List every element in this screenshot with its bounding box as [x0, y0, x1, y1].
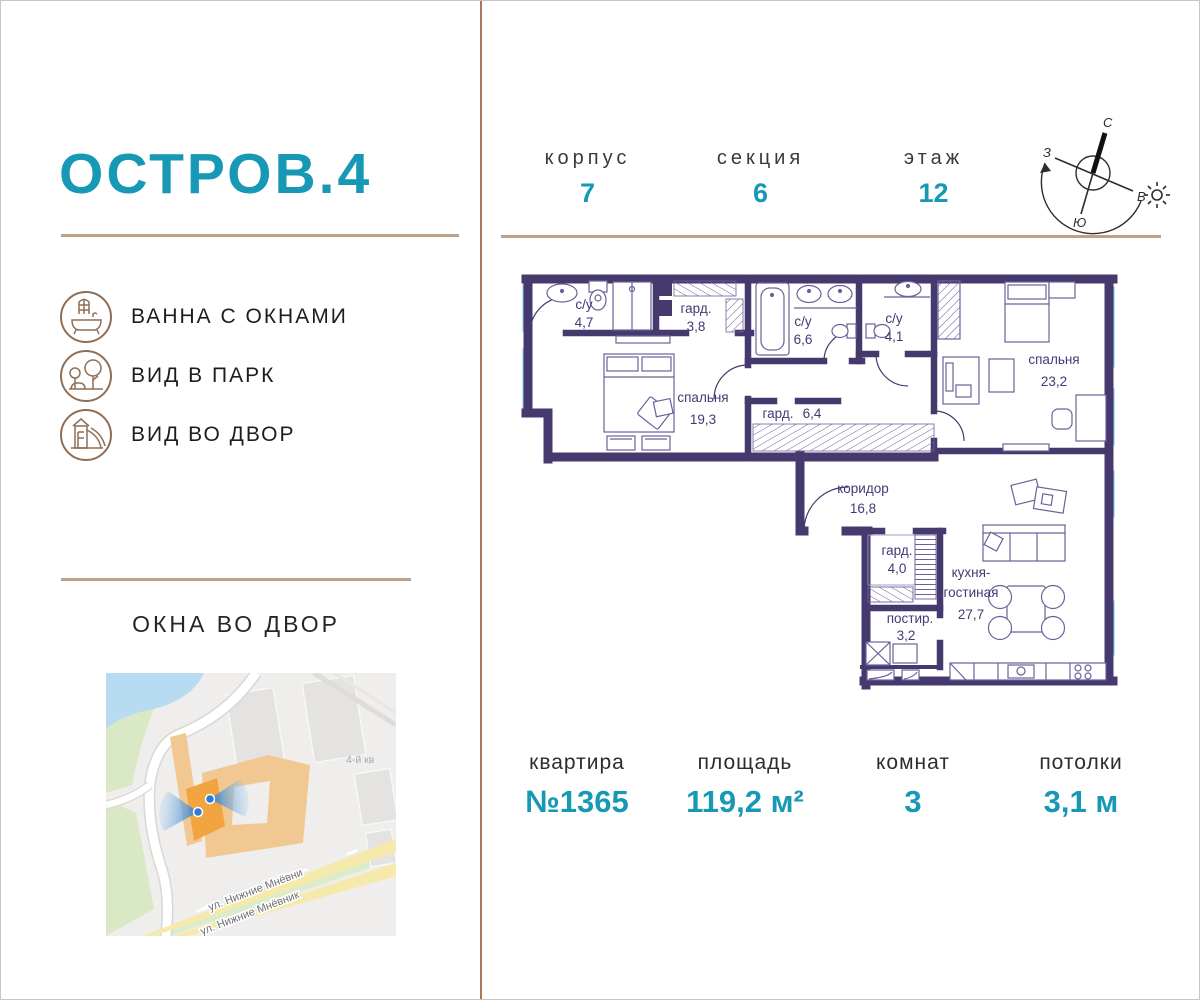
stat-korpus-value: 7: [501, 178, 674, 209]
feature-park-view: ВИД В ПАРК: [59, 350, 348, 402]
feature-bath-windows-label: ВАННА С ОКНАМИ: [131, 305, 348, 329]
feature-park-view-label: ВИД В ПАРК: [131, 364, 275, 388]
stat-sekcia: секция 6: [674, 147, 847, 209]
stat-flat-number: квартира №1365: [493, 751, 661, 820]
stat-rooms-label: комнат: [829, 751, 997, 775]
compass-south-label: Ю: [1073, 215, 1086, 230]
logo: ОСТРОВ.4: [59, 141, 461, 207]
stat-korpus: корпус 7: [501, 147, 674, 209]
stat-flat-number-label: квартира: [493, 751, 661, 775]
bathroom-47-fixtures: [547, 281, 651, 330]
floor-plan[interactable]: с/у 4,7 гард. 3,8 с/у 6,6 с/у 4,1 спальн…: [516, 267, 1126, 701]
room-label-gard40: гард.: [882, 543, 913, 558]
feature-bath-windows: ВАННА С ОКНАМИ: [59, 291, 348, 343]
stat-area: площадь 119,2 м²: [661, 751, 829, 820]
summary-stats: квартира №1365 площадь 119,2 м² комнат 3…: [493, 751, 1165, 820]
map-view-dot[interactable]: [194, 808, 203, 817]
stat-ceiling: потолки 3,1 м: [997, 751, 1165, 820]
flat-card-page: ОСТРОВ.4 корпус 7 секция 6 этаж 12 С Ю З: [0, 0, 1200, 1000]
district-label: 4-й кв: [346, 754, 375, 766]
room-label-su47: с/у: [575, 297, 593, 312]
bathroom-66-fixtures: [756, 283, 890, 355]
wardrobe-64-fixtures: [753, 424, 934, 451]
mini-map[interactable]: ул. Нижние Мнёвни ул. Нижние Мнёвник 4-й…: [106, 673, 396, 936]
map-underline: [61, 578, 411, 581]
room-area-su47: 4,7: [575, 315, 594, 330]
stat-flat-number-value: №1365: [493, 784, 661, 820]
stat-sekcia-value: 6: [674, 178, 847, 209]
bedroom-232-furniture: [938, 281, 1106, 451]
room-area-kitchen: 27,7: [958, 607, 984, 622]
room-area-postir: 3,2: [897, 628, 916, 643]
vertical-divider: [480, 1, 482, 1000]
stat-ceiling-value: 3,1 м: [997, 784, 1165, 820]
room-label-su66: с/у: [794, 314, 812, 329]
compass-west-label: З: [1043, 145, 1051, 160]
room-area-gard40: 4,0: [888, 561, 907, 576]
room-label-kitchen-2: гостиная: [944, 585, 999, 600]
feature-list: ВАННА С ОКНАМИ ВИД В ПАРК: [59, 291, 348, 468]
bath-with-window-icon: [59, 290, 113, 344]
feature-courtyard-view-label: ВИД ВО ДВОР: [131, 423, 296, 447]
room-label-gard38: гард.: [681, 301, 712, 316]
building-stats: корпус 7 секция 6 этаж 12: [501, 147, 1021, 209]
map-view-dot[interactable]: [206, 795, 215, 804]
room-area-bedroom232: 23,2: [1041, 374, 1067, 389]
room-area-bedroom193: 19,3: [690, 412, 716, 427]
feature-courtyard-view: ВИД ВО ДВОР: [59, 409, 348, 461]
room-area-gard38: 3,8: [687, 319, 706, 334]
stat-ceiling-label: потолки: [997, 751, 1165, 775]
stat-etazh-value: 12: [847, 178, 1020, 209]
stat-rooms: комнат 3: [829, 751, 997, 820]
stat-area-value: 119,2 м²: [661, 784, 829, 820]
room-label-koridor: коридор: [837, 481, 889, 496]
compass-icon: С Ю З В: [1029, 111, 1171, 237]
room-area-su41: 4,1: [885, 329, 904, 344]
room-label-bedroom193: спальня: [677, 390, 728, 405]
logo-underline: [61, 234, 459, 237]
room-label-su41: с/у: [885, 311, 903, 326]
room-label-bedroom232: спальня: [1028, 352, 1079, 367]
room-area-su66: 6,6: [794, 332, 813, 347]
stat-korpus-label: корпус: [501, 147, 674, 170]
room-label-postir: постир.: [887, 611, 934, 626]
bathroom-41-fixtures: [884, 282, 930, 298]
room-area-gard64: 6,4: [803, 406, 822, 421]
stat-area-label: площадь: [661, 751, 829, 775]
room-area-koridor: 16,8: [850, 501, 876, 516]
laundry-32-fixtures: [866, 642, 919, 680]
compass-north-label: С: [1103, 115, 1113, 130]
map-title: ОКНА ВО ДВОР: [61, 611, 411, 638]
stat-rooms-value: 3: [829, 784, 997, 820]
room-label-gard64: гард.: [763, 406, 794, 421]
stat-sekcia-label: секция: [674, 147, 847, 170]
stat-etazh: этаж 12: [847, 147, 1020, 209]
sun-icon: [1144, 182, 1170, 208]
courtyard-view-icon: [59, 408, 113, 462]
park-view-icon: [59, 349, 113, 403]
compass-east-label: В: [1137, 189, 1146, 204]
stat-etazh-label: этаж: [847, 147, 1020, 170]
room-label-kitchen: кухня-: [952, 565, 991, 580]
bedroom-193-furniture: [604, 336, 674, 450]
